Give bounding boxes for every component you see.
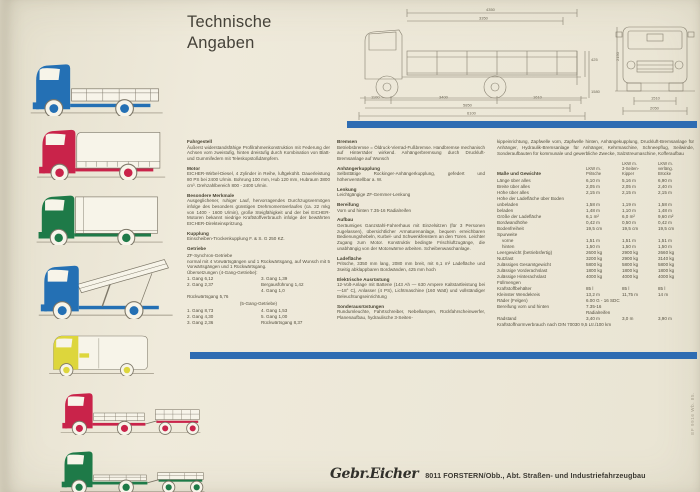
section-lenkung: Lenkung Leichtgängige ZF-Gemmer-Lenkung — [337, 187, 485, 198]
section-body: Geräumiges Ganzstahl-Fahrerhaus mit Einz… — [337, 223, 485, 252]
table-column-header: LKW m. Pritsche — [586, 166, 622, 176]
truck-illustration-platform-trailer — [36, 438, 228, 492]
section-body: Pritsche, 3350 mm lang, 2080 mm breit, m… — [337, 261, 485, 273]
dimension-label: 3400 — [439, 95, 449, 100]
print-reference-code: EF 9916 Wb. 85. — [690, 392, 695, 435]
section-heading: Anhängerkupplung — [337, 166, 485, 171]
table-row: Bereifung vorn und hinten7.35-16 Radialr… — [497, 304, 694, 316]
dimension-label: 1610 — [533, 95, 543, 100]
table-row-label: Kraftstoffnormverbrauch nach DIN 70030 9… — [497, 322, 694, 328]
section-heading: Bereifung — [337, 202, 485, 207]
section-sonderausruestungen: Sonderausrüstungen Rundumleuchte, Fahrts… — [337, 304, 485, 321]
truck-illustration-flatbed — [25, 48, 167, 116]
section-besondere-merkmale: Besondere Merkmale Ausgeglichener, ruhig… — [187, 193, 330, 227]
gear-ratio: 4. Gang 1,0 — [261, 288, 330, 294]
section-body: Rundumleuchte, Fahrtschreiber, Nebellamp… — [337, 309, 485, 321]
section-motor: Motor EICHER-Wirbel-Diesel, 4 Zylinder i… — [187, 166, 330, 189]
section-anhaengerkupplung: Anhängerkupplung Selbsttätige Rockinger-… — [337, 166, 485, 183]
dimension-label: 1580 — [591, 89, 601, 94]
truck-illustration-flatbed-trailer — [36, 380, 224, 435]
dimensions-weights-table: Länge über alles6,10 m5,16 m6,90 mBreite… — [497, 178, 694, 328]
section-body: Leichtgängige ZF-Gemmer-Lenkung — [337, 192, 485, 198]
divider-bar-top — [347, 121, 697, 128]
dimension-label: 2150 — [615, 51, 620, 61]
section-heading: Elektrische Ausrüstung — [337, 277, 485, 282]
gear-ratio: 3. Gang 2,36 — [187, 320, 256, 326]
gear-ratio: 2. Gang 2,37 — [187, 282, 256, 288]
sonderausruestungen-continuation: kippeinrichtung, Zapfwelle vorn, Zapfwel… — [497, 139, 694, 156]
gear-ratios-4speed: 1. Gang 6,12 2. Gang 2,37 3. Gang 1,39 B… — [187, 276, 330, 294]
technical-drawing: 4350 3350 425 1580 1100 3400 1610 5850 6… — [345, 3, 697, 121]
dimension-label: 1100 — [371, 95, 380, 100]
dimension-label: 2050 — [650, 106, 660, 111]
section-heading: Getriebe — [187, 246, 330, 252]
table-section-title: Maße und Gewichte — [497, 171, 586, 176]
section-body: Ausgeglichener, ruhiger Lauf, hervorrage… — [187, 198, 330, 227]
section-heading: Sonderausrüstungen — [337, 304, 485, 309]
dimension-label: 5850 — [463, 103, 473, 108]
section-heading: Aufbau — [337, 217, 485, 222]
front-view-drawing — [615, 27, 695, 115]
table-row-label: Bereifung vorn und hinten — [497, 304, 586, 316]
page-title-line1: Technische — [187, 12, 272, 33]
gear-ratios-5speed: 1. Gang 8,73 2. Gang 4,30 3. Gang 2,36 4… — [187, 308, 330, 326]
section-bremsen: Bremsen Betriebsbremse = Öldruck-Vierrad… — [337, 139, 485, 162]
truck-illustration-box-van — [33, 180, 165, 245]
divider-bar-bottom — [190, 352, 697, 359]
table-cell-span: 7.35-16 Radialreifen — [586, 304, 694, 316]
section-heading: Lenkung — [337, 187, 485, 192]
section-ladeflaeche: Ladefläche Pritsche, 3350 mm lang, 2080 … — [337, 256, 485, 273]
footer-address: 8011 FORSTERN/Obb., Abt. Straßen- und In… — [425, 471, 645, 480]
truck-illustration-tarpaulin — [33, 114, 168, 180]
section-body: Äußerst widerstandsfähige Profilrahmenko… — [187, 145, 330, 162]
gear-ratio: Rückwärtsgang 8,37 — [261, 320, 330, 326]
section-body: Selbsttätige Rockinger-Anhängerkupplung,… — [337, 171, 485, 183]
section-heading: Bremsen — [337, 139, 485, 144]
getriebe-intro: normal mit 4 Vorwärtsgängen und 1 Rückwä… — [187, 259, 330, 271]
section-body: EICHER-Wirbel-Diesel, 4 Zylinder in Reih… — [187, 171, 330, 188]
spec-column-3: kippeinrichtung, Zapfwelle vorn, Zapfwel… — [497, 139, 694, 328]
brochure-page: Technische Angaben — [0, 0, 700, 492]
page-title-line2: Angaben — [187, 33, 272, 54]
footer: Gebr.Eicher 8011 FORSTERN/Obb., Abt. Str… — [330, 466, 646, 482]
section-heading: Kupplung — [187, 231, 330, 236]
gearbox-5speed-label: (5-Gang-Getriebe) — [187, 301, 330, 307]
section-body: Vorn und hinten 7.35-16 Radialreifen — [337, 208, 485, 214]
truck-illustration-tipper — [36, 245, 174, 319]
table-row: Kraftstoffnormverbrauch nach DIN 70030 9… — [497, 322, 694, 328]
section-body: 12-Volt-Anlage mit Batterie (143 Ah — 63… — [337, 282, 485, 299]
section-fahrgestell: Fahrgestell Äußerst widerstandsfähige Pr… — [187, 139, 330, 162]
dimension-label: 1510 — [651, 96, 661, 101]
section-bereifung: Bereifung Vorn und hinten 7.35-16 Radial… — [337, 202, 485, 213]
section-body: Betriebsbremse = Öldruck-Vierrad-Fußbrem… — [337, 145, 485, 162]
brand-logo: Gebr.Eicher — [330, 466, 418, 482]
dimension-label: 6100 — [467, 111, 477, 116]
table-header: Maße und Gewichte LKW m. Pritsche LKW m.… — [497, 161, 694, 176]
spec-column-2: Bremsen Betriebsbremse = Öldruck-Vierrad… — [337, 139, 485, 325]
spec-column-1: Fahrgestell Äußerst widerstandsfähige Pr… — [187, 139, 330, 330]
dimension-label: 3350 — [479, 16, 489, 21]
section-heading: Besondere Merkmale — [187, 193, 330, 198]
table-column-header: LKW m. 3-Seiten- Kipper — [622, 161, 658, 176]
gear-ratio-reverse: Rückwärtsgang 5,76 — [187, 294, 330, 300]
section-elektrische-ausruestung: Elektrische Ausrüstung 12-Volt-Anlage mi… — [337, 277, 485, 300]
page-title: Technische Angaben — [187, 12, 272, 54]
section-getriebe: Getriebe ZF-Synchron-Getriebe normal mit… — [187, 246, 330, 326]
side-view-drawing — [359, 9, 589, 120]
dimension-label: 425 — [591, 57, 598, 62]
section-body: Einscheiben-Trockenkupplung F. & S. G 25… — [187, 236, 330, 242]
section-heading: Fahrgestell — [187, 139, 330, 144]
paper-edge-shadow — [0, 0, 9, 492]
section-heading: Ladefläche — [337, 256, 485, 261]
section-heading: Motor — [187, 166, 330, 171]
truck-illustration-panel-van — [36, 322, 166, 376]
dimension-label: 4350 — [486, 7, 496, 12]
table-column-header: LKW m. verläng. Brücke — [658, 161, 694, 176]
section-kupplung: Kupplung Einscheiben-Trockenkupplung F. … — [187, 231, 330, 242]
section-aufbau: Aufbau Geräumiges Ganzstahl-Fahrerhaus m… — [337, 217, 485, 251]
